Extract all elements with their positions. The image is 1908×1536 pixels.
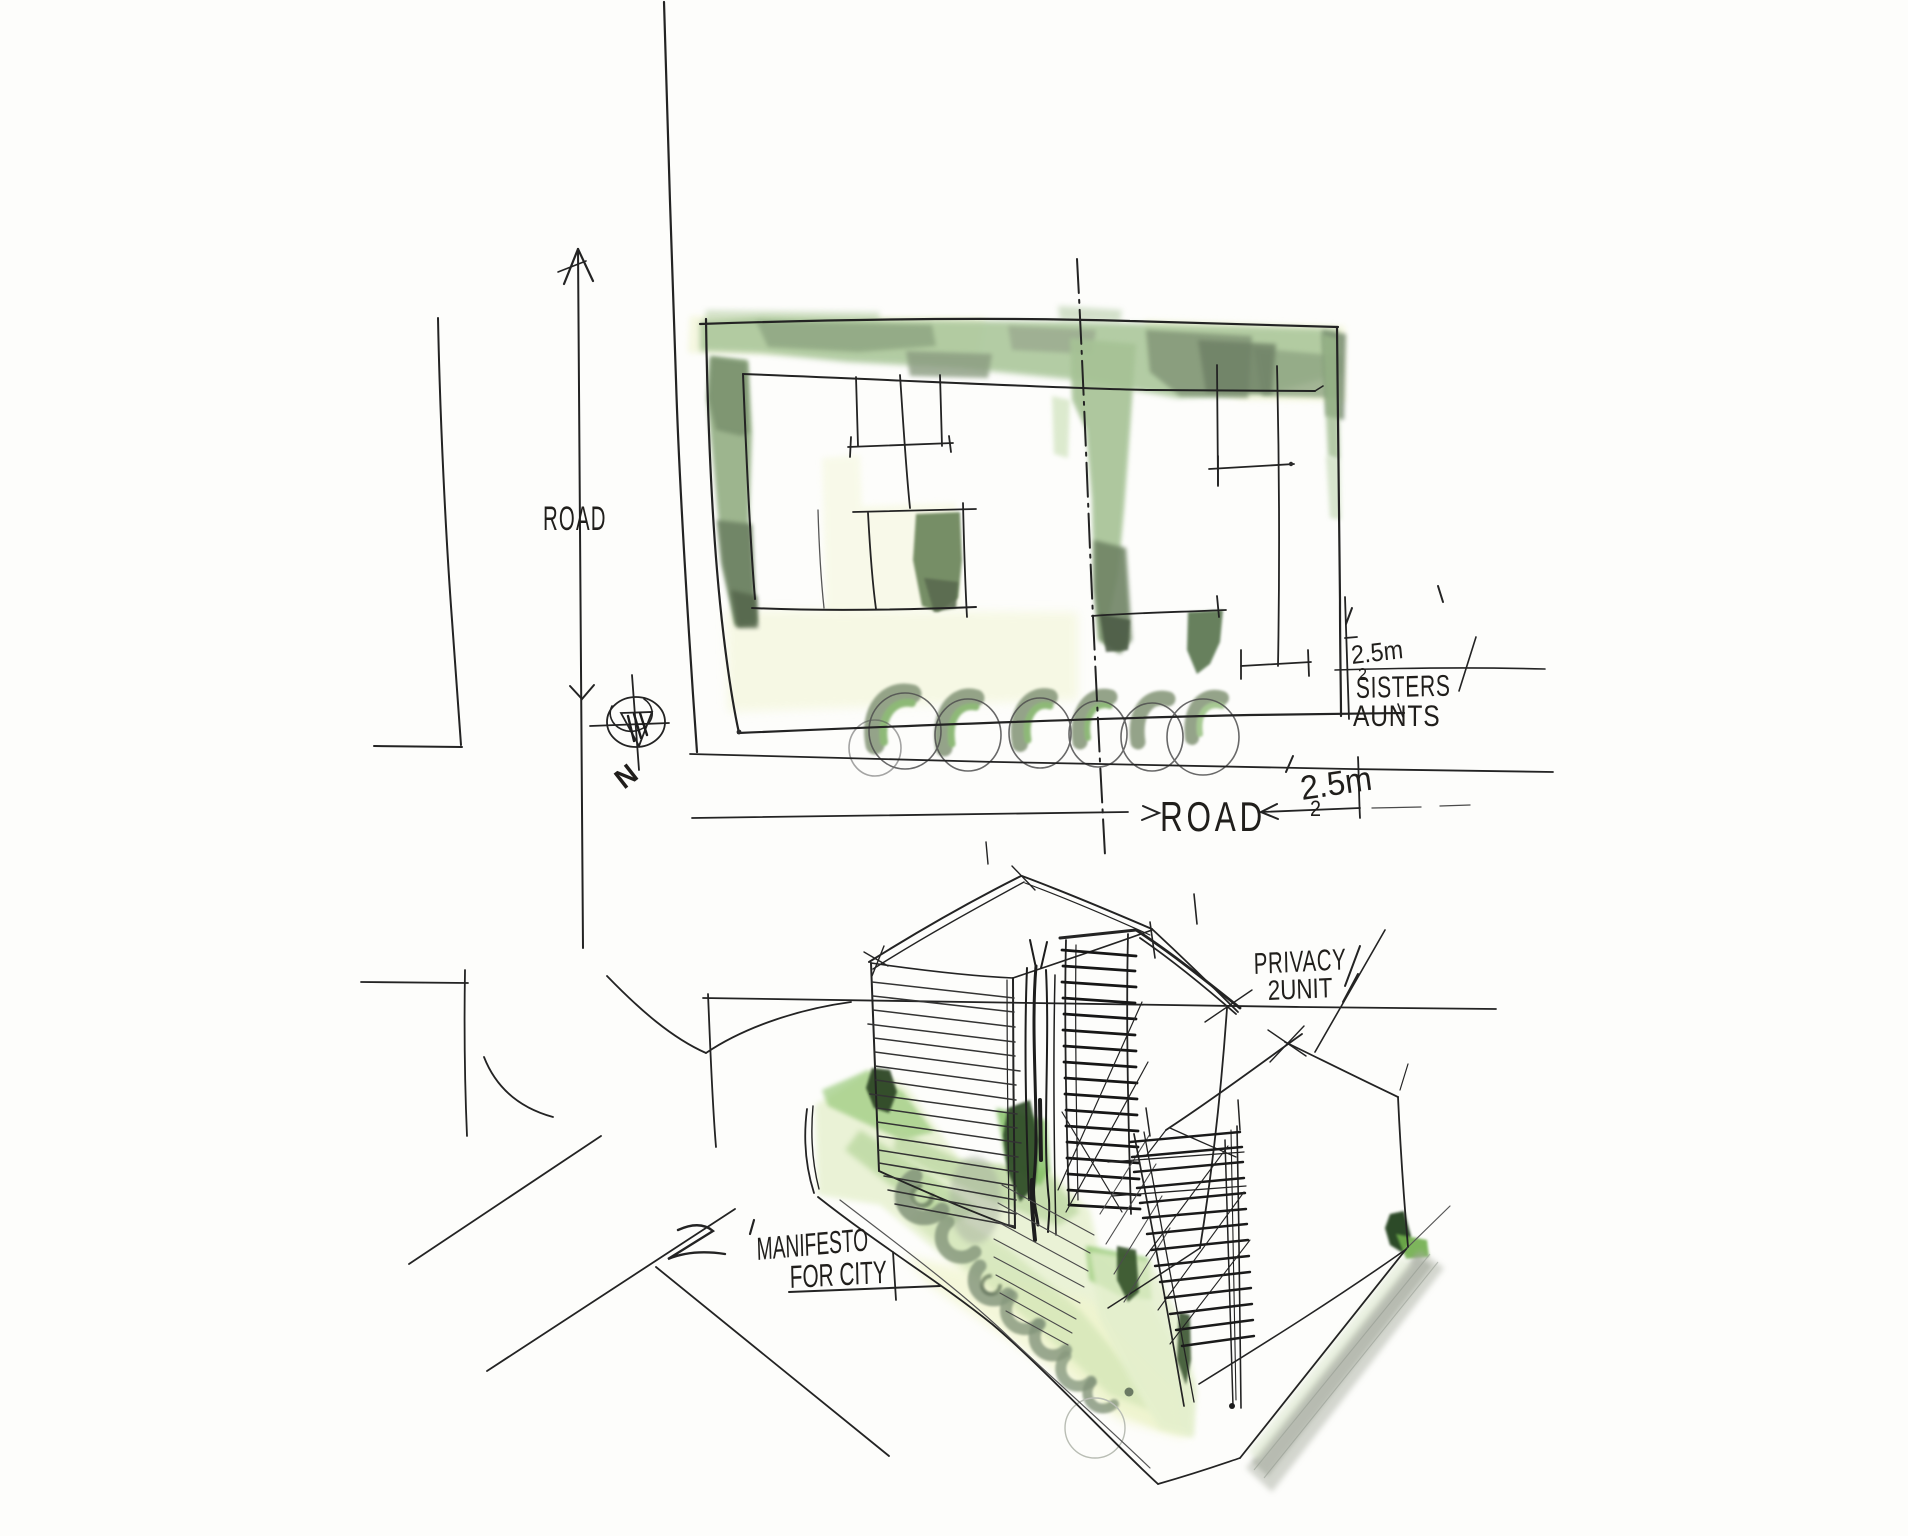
svg-text:2: 2 [1358,664,1367,684]
svg-text:FOR CITY: FOR CITY [789,1254,887,1295]
svg-text:2UNIT: 2UNIT [1267,973,1333,1007]
svg-text:2: 2 [1310,797,1321,821]
svg-text:AUNTS: AUNTS [1353,699,1440,733]
svg-text:ROAD: ROAD [543,500,607,538]
svg-text:ROAD: ROAD [1160,793,1266,841]
